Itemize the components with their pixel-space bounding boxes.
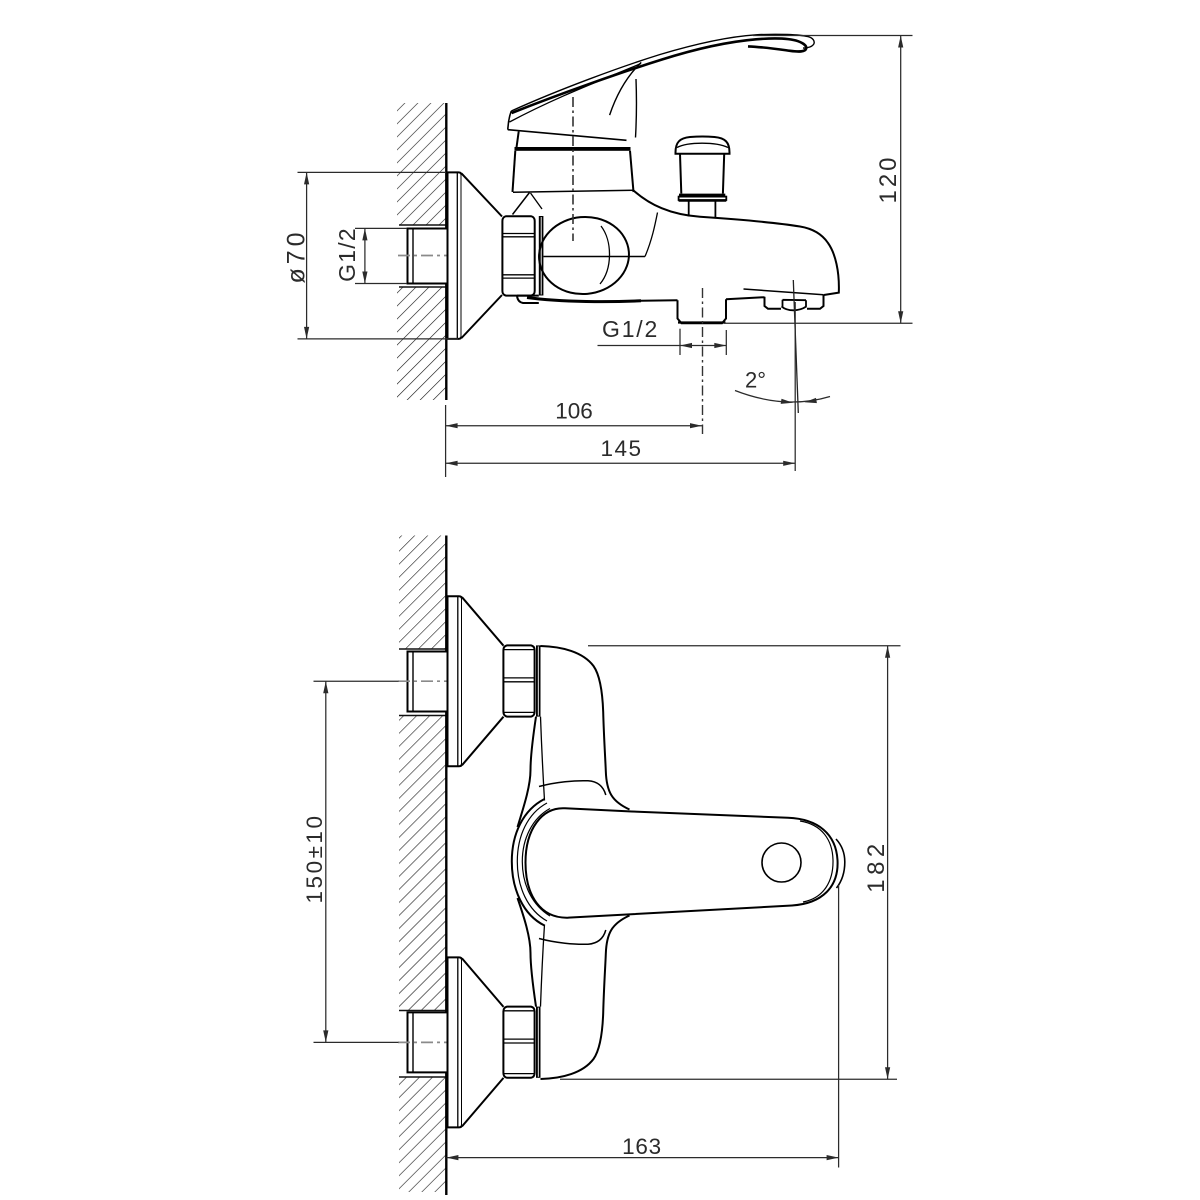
svg-text:163: 163 — [622, 1134, 662, 1159]
svg-text:2°: 2° — [745, 368, 766, 393]
svg-text:120: 120 — [875, 154, 902, 203]
svg-text:G1/2: G1/2 — [334, 227, 360, 282]
svg-text:150±10: 150±10 — [302, 814, 327, 904]
svg-text:145: 145 — [600, 436, 642, 461]
svg-text:106: 106 — [555, 399, 593, 424]
svg-text:ø70: ø70 — [283, 228, 311, 283]
svg-text:G1/2: G1/2 — [602, 316, 659, 342]
svg-text:182: 182 — [863, 839, 890, 893]
